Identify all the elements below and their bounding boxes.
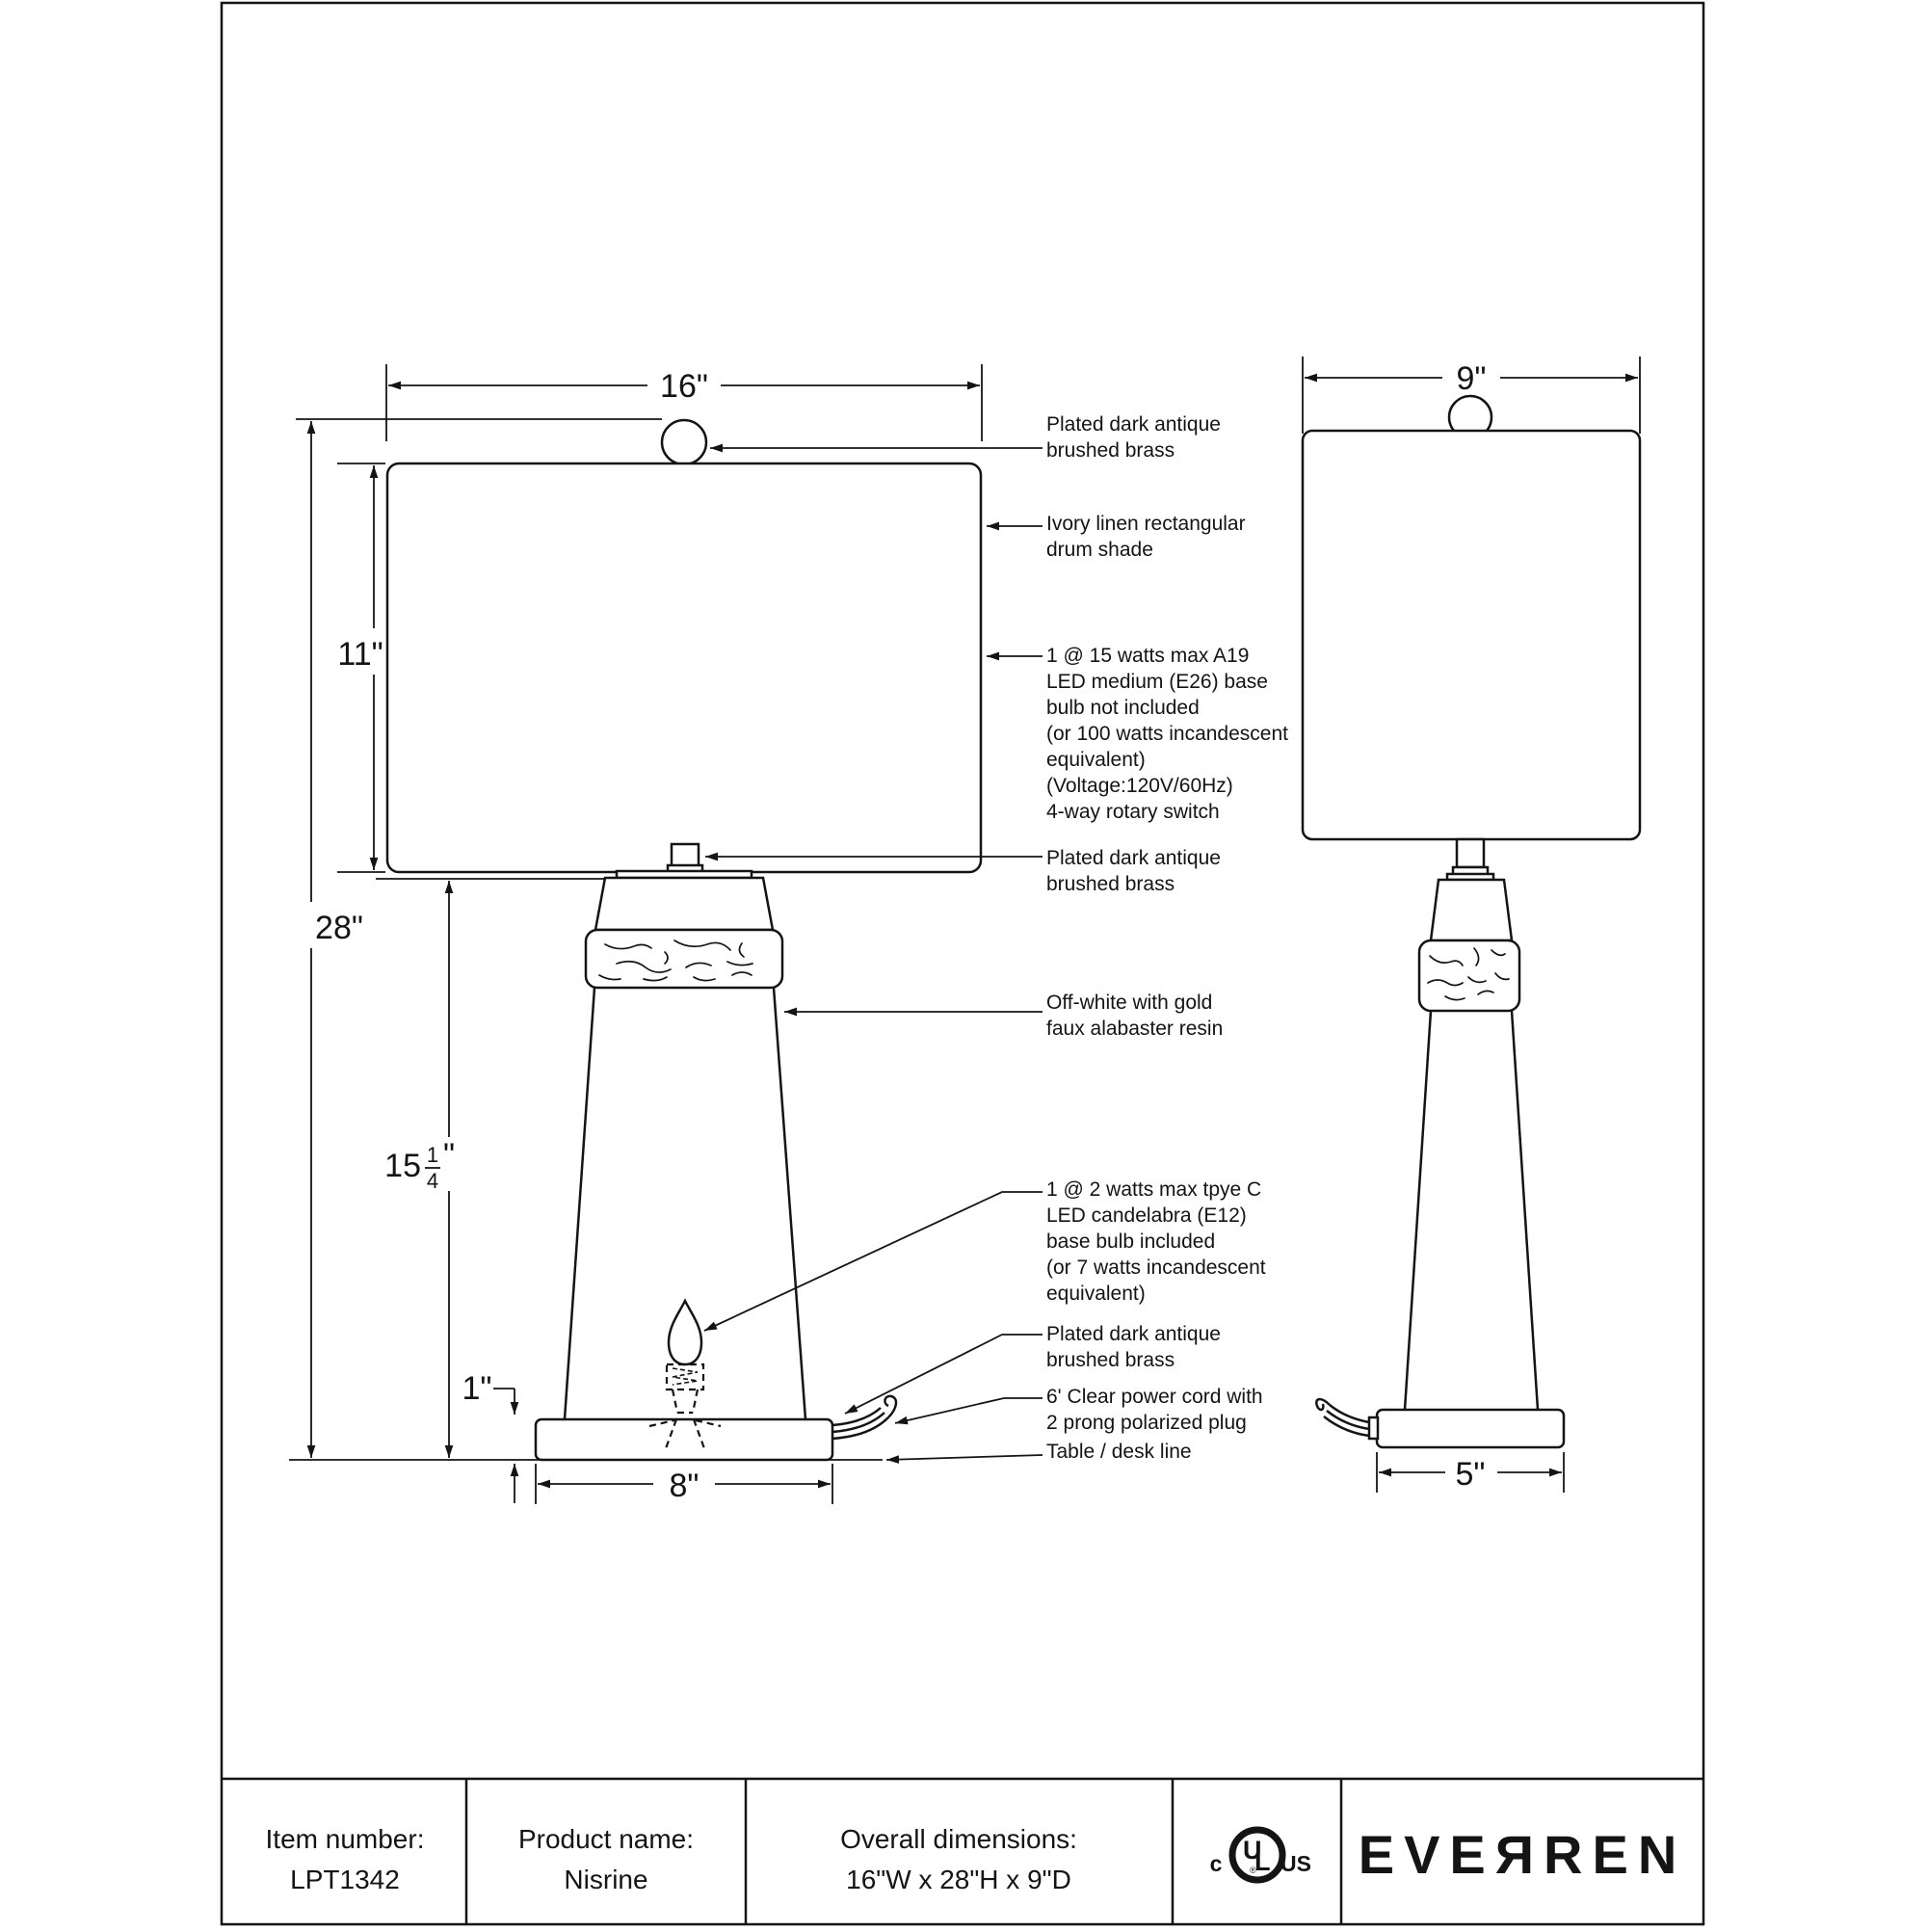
ul-certification-mark: U L ® c US [1210, 1830, 1311, 1880]
dim-1514-denominator: 4 [427, 1169, 438, 1193]
product-name-label: Product name: [518, 1824, 694, 1854]
annotation-shade: Ivory linen rectangular drum shade [987, 513, 1246, 561]
annotation-night-bulb-line4: (or 7 watts incandescent [1046, 1257, 1266, 1279]
annotation-shade-line1: Ivory linen rectangular [1046, 513, 1246, 535]
annotation-neck-line1: Plated dark antique [1046, 847, 1221, 869]
annotation-cord: 6' Clear power cord with 2 prong polariz… [895, 1386, 1263, 1434]
front-view: 16" 28" 11" 15 1 4 " [289, 362, 982, 1506]
front-base [536, 1419, 832, 1460]
front-shade [387, 463, 981, 872]
dim-1514-numerator: 1 [427, 1143, 438, 1167]
annotation-body-line2: faux alabaster resin [1046, 1018, 1223, 1040]
ul-c-mark: c [1210, 1851, 1223, 1876]
dim-8-label: 8" [670, 1468, 700, 1504]
annotation-main-bulb-line2: LED medium (E26) base [1046, 671, 1268, 693]
annotation-finial-line1: Plated dark antique [1046, 413, 1221, 436]
annotation-night-bulb-line1: 1 @ 2 watts max tpye C [1046, 1178, 1261, 1201]
annotation-base-leader [845, 1335, 1043, 1414]
annotation-night-bulb-line3: base bulb included [1046, 1231, 1215, 1253]
footer-table: Item number: LPT1342 Product name: Nisri… [222, 1779, 1703, 1924]
bulb-socket [667, 1364, 703, 1389]
annotation-cord-leader [895, 1398, 1043, 1423]
dim-1-label: 1" [462, 1370, 492, 1407]
side-cord-strain-relief [1369, 1417, 1378, 1439]
overall-dimensions-label: Overall dimensions: [840, 1824, 1077, 1854]
product-name-value: Nisrine [564, 1865, 647, 1894]
annotation-main-bulb-line1: 1 @ 15 watts max A19 [1046, 645, 1249, 667]
annotation-finial-line2: brushed brass [1046, 439, 1175, 462]
annotation-base-line1: Plated dark antique [1046, 1323, 1221, 1345]
side-column-right-edge [1512, 1011, 1538, 1410]
annotation-neck-line2: brushed brass [1046, 873, 1175, 895]
front-neck-rod [672, 844, 699, 867]
annotation-base-line2: brushed brass [1046, 1349, 1175, 1371]
dim-9-label: 9" [1457, 360, 1487, 397]
front-finial-ball [662, 420, 706, 464]
side-shade [1303, 431, 1640, 839]
side-base [1377, 1410, 1564, 1447]
annotation-night-bulb-line5: equivalent) [1046, 1283, 1146, 1305]
side-view: 9" [1303, 355, 1640, 1495]
annotation-main-bulb-line3: bulb not included [1046, 697, 1200, 719]
annotation-night-bulb-line2: LED candelabra (E12) [1046, 1204, 1247, 1227]
ul-registered-symbol: ® [1250, 1866, 1256, 1875]
dim-5-label: 5" [1456, 1456, 1486, 1493]
brand-logo: EVEЯREN [1359, 1824, 1687, 1885]
cell-product-name: Product name: Nisrine [518, 1824, 694, 1894]
side-body-band [1419, 940, 1519, 1011]
side-column-left-edge [1405, 1011, 1431, 1410]
annotation-desk-leader [886, 1455, 1043, 1460]
bulb-socket-threads [673, 1368, 698, 1385]
front-body-cap [595, 878, 773, 930]
cell-item-number: Item number: LPT1342 [266, 1824, 425, 1894]
side-power-cord [1316, 1399, 1378, 1439]
annotation-desk-line1: Table / desk line [1046, 1441, 1192, 1463]
front-column-left-edge [565, 988, 594, 1419]
dim-1514-unit: " [443, 1137, 455, 1174]
annotation-main-bulb: 1 @ 15 watts max A19 LED medium (E26) ba… [987, 645, 1288, 823]
annotation-finial: Plated dark antique brushed brass [710, 413, 1221, 462]
cell-overall-dimensions: Overall dimensions: 16"W x 28"H x 9"D [840, 1824, 1077, 1894]
bulb-socket-stem [673, 1389, 698, 1413]
dim-1514-whole: 15 [384, 1148, 421, 1184]
drawing-canvas: 16" 28" 11" 15 1 4 " [0, 0, 1927, 1927]
front-power-cord [832, 1396, 896, 1439]
item-number-label: Item number: [266, 1824, 425, 1854]
spec-sheet-page: 16" 28" 11" 15 1 4 " [0, 0, 1927, 1927]
annotation-main-bulb-line4: (or 100 watts incandescent [1046, 723, 1288, 745]
dim-11-label: 11" [337, 636, 383, 673]
annotation-cord-line1: 6' Clear power cord with [1046, 1386, 1263, 1408]
overall-dimensions-value: 16"W x 28"H x 9"D [846, 1865, 1071, 1894]
annotation-cord-line2: 2 prong polarized plug [1046, 1412, 1247, 1434]
bulb-glass [669, 1301, 701, 1364]
annotation-shade-line2: drum shade [1046, 539, 1153, 561]
annotation-body: Off-white with gold faux alabaster resin [784, 992, 1223, 1040]
ul-letter-l: L [1254, 1847, 1271, 1876]
annotation-main-bulb-line5: equivalent) [1046, 749, 1146, 771]
ul-us-mark: US [1280, 1851, 1311, 1876]
annotation-main-bulb-line6: (Voltage:120V/60Hz) [1046, 775, 1233, 797]
item-number-value: LPT1342 [290, 1865, 400, 1894]
annotation-night-bulb-leader [704, 1192, 1043, 1331]
dim-16-label: 16" [660, 368, 708, 405]
side-body-cap [1431, 880, 1512, 940]
dim-28-label: 28" [315, 910, 363, 946]
side-neck-rod [1457, 839, 1484, 867]
annotation-body-line1: Off-white with gold [1046, 992, 1212, 1014]
front-column-right-edge [774, 988, 805, 1419]
annotation-desk: Table / desk line [886, 1441, 1192, 1463]
annotation-main-bulb-line7: 4-way rotary switch [1046, 801, 1220, 823]
